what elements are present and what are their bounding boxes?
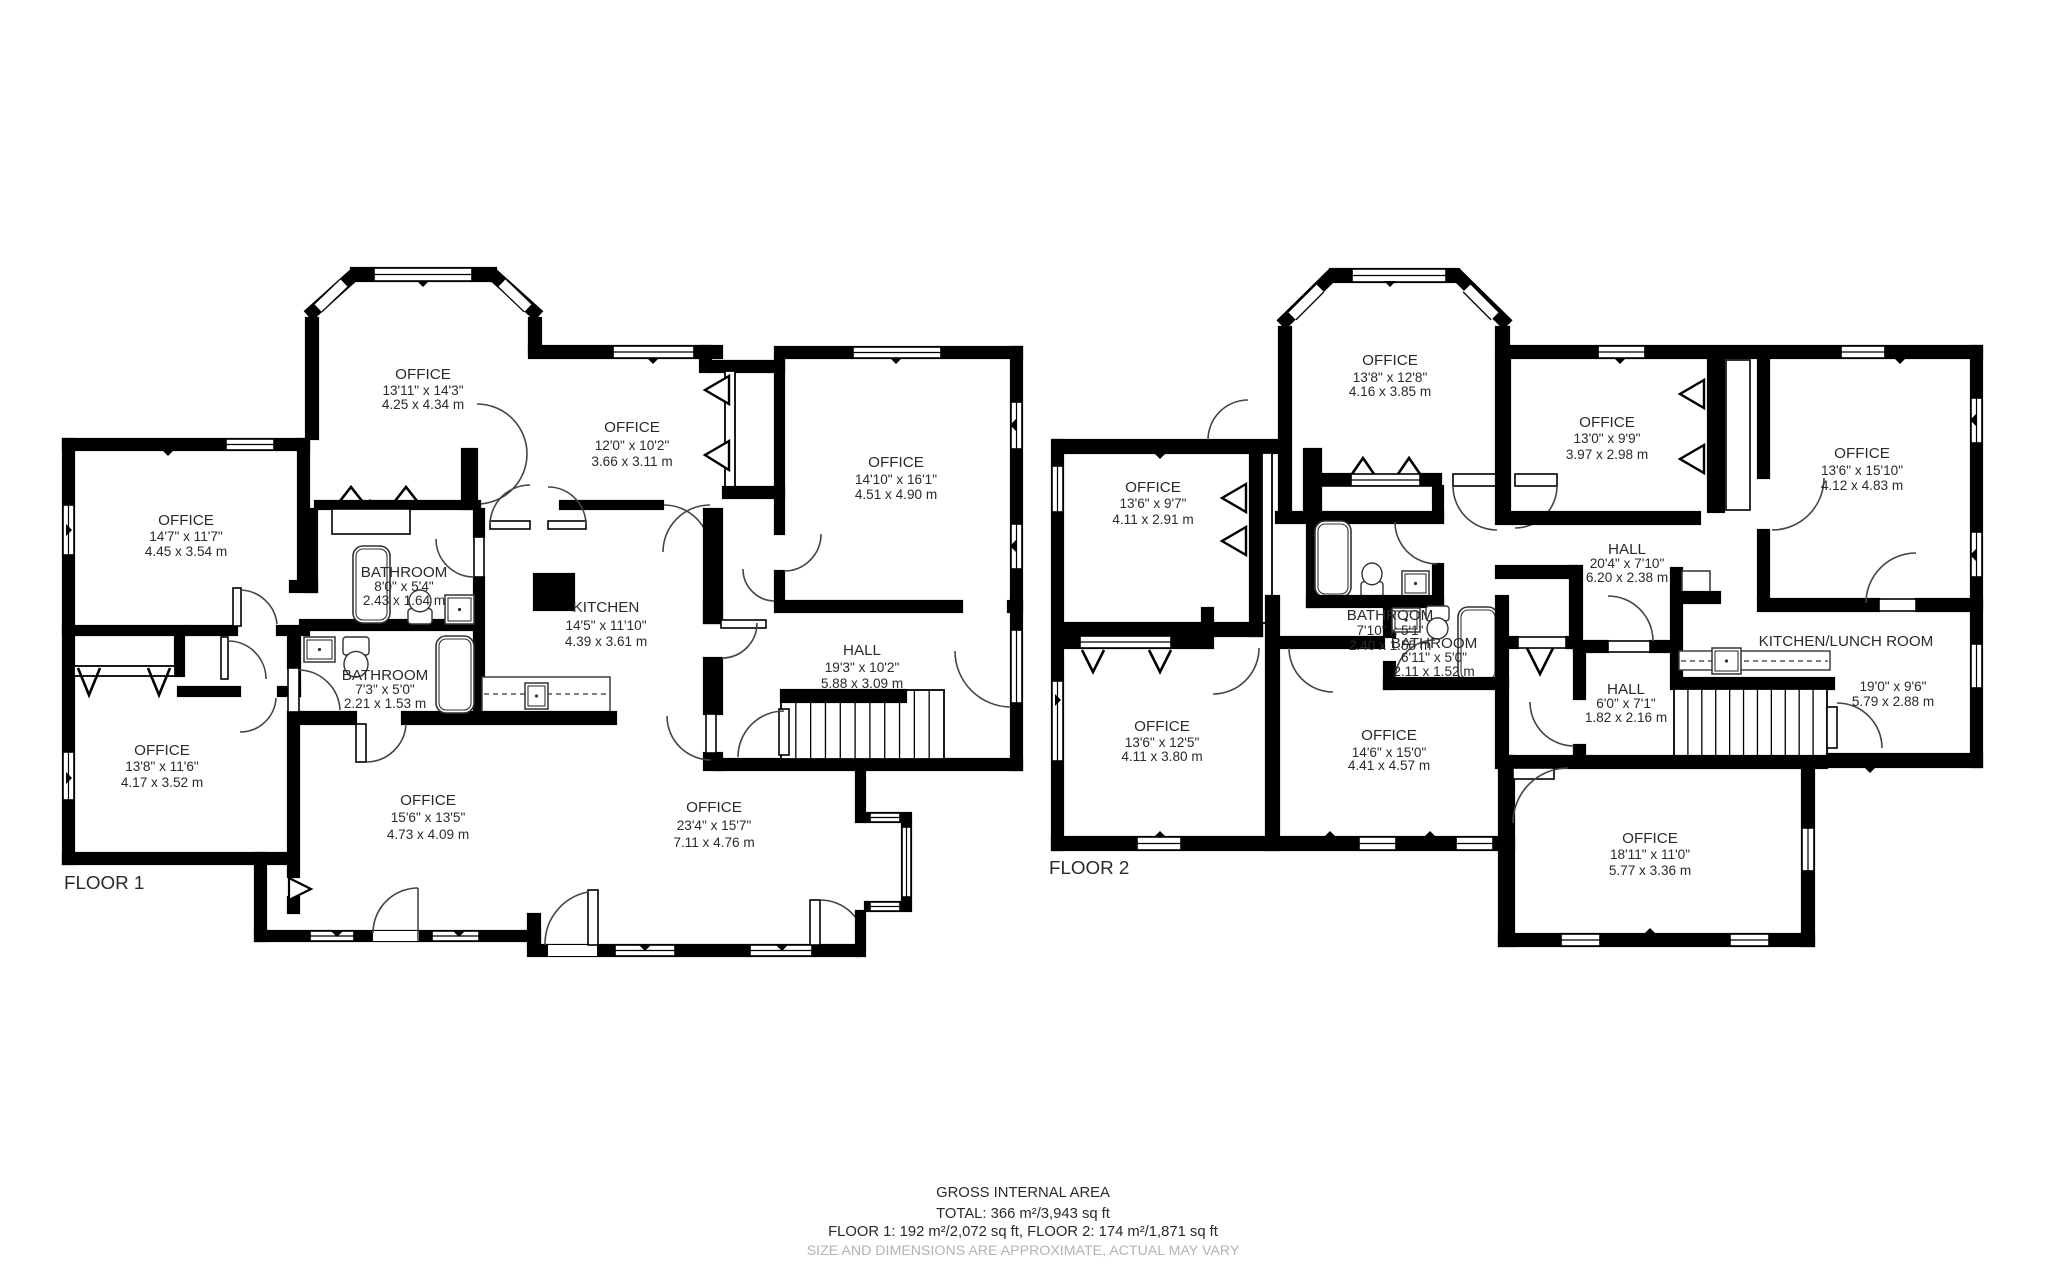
svg-text:13'8" x 11'6": 13'8" x 11'6" (125, 759, 199, 774)
svg-text:3.66 x 3.11 m: 3.66 x 3.11 m (591, 454, 672, 469)
svg-text:13'6" x 9'7": 13'6" x 9'7" (1120, 496, 1187, 511)
svg-text:OFFICE: OFFICE (1622, 830, 1678, 847)
svg-text:14'10" x 16'1": 14'10" x 16'1" (855, 472, 937, 487)
svg-text:FLOOR 2: FLOOR 2 (1049, 857, 1129, 878)
svg-text:OFFICE: OFFICE (686, 799, 742, 816)
svg-text:4.11 x 2.91 m: 4.11 x 2.91 m (1112, 512, 1193, 527)
svg-text:OFFICE: OFFICE (158, 512, 214, 529)
svg-text:13'11" x 14'3": 13'11" x 14'3" (382, 383, 463, 398)
svg-text:4.39 x 3.61 m: 4.39 x 3.61 m (565, 634, 647, 649)
svg-text:BATHROOM: BATHROOM (1347, 607, 1434, 624)
svg-text:4.41 x 4.57 m: 4.41 x 4.57 m (1348, 758, 1430, 773)
svg-text:OFFICE: OFFICE (1361, 727, 1417, 744)
svg-text:OFFICE: OFFICE (1579, 414, 1635, 431)
svg-text:20'4" x 7'10": 20'4" x 7'10" (1590, 556, 1665, 571)
svg-text:3.97 x 2.98 m: 3.97 x 2.98 m (1566, 447, 1648, 462)
svg-text:5.88 x 3.09 m: 5.88 x 3.09 m (821, 676, 903, 691)
svg-text:14'5" x 11'10": 14'5" x 11'10" (565, 618, 646, 633)
svg-text:5.77 x 3.36 m: 5.77 x 3.36 m (1609, 863, 1691, 878)
svg-text:6.20 x 2.38 m: 6.20 x 2.38 m (1586, 570, 1668, 585)
svg-text:4.51 x 4.90 m: 4.51 x 4.90 m (855, 487, 937, 502)
svg-text:FLOOR 1: 192 m²/2,072 sq ft, F: FLOOR 1: 192 m²/2,072 sq ft, FLOOR 2: 17… (828, 1224, 1218, 1240)
svg-text:FLOOR 1: FLOOR 1 (64, 872, 144, 893)
svg-text:OFFICE: OFFICE (604, 419, 660, 436)
svg-text:SIZE AND DIMENSIONS ARE APPROX: SIZE AND DIMENSIONS ARE APPROXIMATE, ACT… (807, 1243, 1240, 1259)
svg-text:18'11" x 11'0": 18'11" x 11'0" (1610, 847, 1690, 862)
svg-text:12'0" x 10'2": 12'0" x 10'2" (595, 438, 670, 453)
svg-text:7.11 x 4.76 m: 7.11 x 4.76 m (673, 835, 754, 850)
svg-text:14'7" x 11'7": 14'7" x 11'7" (149, 529, 223, 544)
svg-text:2.43 x 1.64 m: 2.43 x 1.64 m (363, 593, 445, 608)
svg-text:KITCHEN/LUNCH ROOM: KITCHEN/LUNCH ROOM (1759, 633, 1934, 650)
svg-text:OFFICE: OFFICE (400, 792, 456, 809)
svg-text:2.21 x 1.53 m: 2.21 x 1.53 m (344, 696, 426, 711)
svg-text:4.45 x 3.54 m: 4.45 x 3.54 m (145, 544, 227, 559)
svg-text:OFFICE: OFFICE (1125, 479, 1181, 496)
svg-text:19'3" x 10'2": 19'3" x 10'2" (825, 660, 900, 675)
svg-text:4.16 x 3.85 m: 4.16 x 3.85 m (1349, 384, 1431, 399)
svg-text:13'0" x 9'9": 13'0" x 9'9" (1574, 431, 1641, 446)
svg-text:8'0" x 5'4": 8'0" x 5'4" (374, 579, 434, 594)
svg-text:5.79 x 2.88 m: 5.79 x 2.88 m (1852, 694, 1934, 709)
svg-text:OFFICE: OFFICE (1834, 445, 1890, 462)
svg-text:13'8" x 12'8": 13'8" x 12'8" (1353, 370, 1428, 385)
svg-text:23'4" x 15'7": 23'4" x 15'7" (677, 818, 752, 833)
svg-text:OFFICE: OFFICE (1362, 352, 1418, 369)
svg-text:OFFICE: OFFICE (1134, 718, 1190, 735)
svg-text:HALL: HALL (843, 642, 881, 659)
svg-text:13'6" x 12'5": 13'6" x 12'5" (1125, 735, 1200, 750)
svg-text:TOTAL: 366 m²/3,943 sq ft: TOTAL: 366 m²/3,943 sq ft (936, 1206, 1110, 1222)
svg-text:1.82 x 2.16 m: 1.82 x 2.16 m (1585, 710, 1667, 725)
svg-text:4.12 x 4.83 m: 4.12 x 4.83 m (1821, 478, 1903, 493)
svg-text:2.11 x 1.52 m: 2.11 x 1.52 m (1393, 664, 1474, 679)
svg-text:7'3" x 5'0": 7'3" x 5'0" (355, 682, 415, 697)
svg-text:OFFICE: OFFICE (395, 366, 451, 383)
svg-text:19'0" x 9'6": 19'0" x 9'6" (1860, 679, 1927, 694)
svg-text:OFFICE: OFFICE (134, 742, 190, 759)
svg-text:15'6" x 13'5": 15'6" x 13'5" (391, 810, 466, 825)
svg-text:4.25 x 4.34 m: 4.25 x 4.34 m (382, 397, 464, 412)
svg-text:4.17 x 3.52 m: 4.17 x 3.52 m (121, 775, 203, 790)
svg-text:OFFICE: OFFICE (868, 454, 924, 471)
svg-text:GROSS INTERNAL AREA: GROSS INTERNAL AREA (936, 1185, 1110, 1201)
svg-text:6'0" x 7'1": 6'0" x 7'1" (1596, 696, 1656, 711)
svg-text:6'11" x 5'0": 6'11" x 5'0" (1401, 650, 1467, 665)
svg-text:4.73 x 4.09 m: 4.73 x 4.09 m (387, 827, 469, 842)
svg-text:4.11 x 3.80 m: 4.11 x 3.80 m (1121, 749, 1202, 764)
svg-text:13'6" x 15'10": 13'6" x 15'10" (1821, 463, 1903, 478)
svg-text:KITCHEN: KITCHEN (573, 599, 640, 616)
